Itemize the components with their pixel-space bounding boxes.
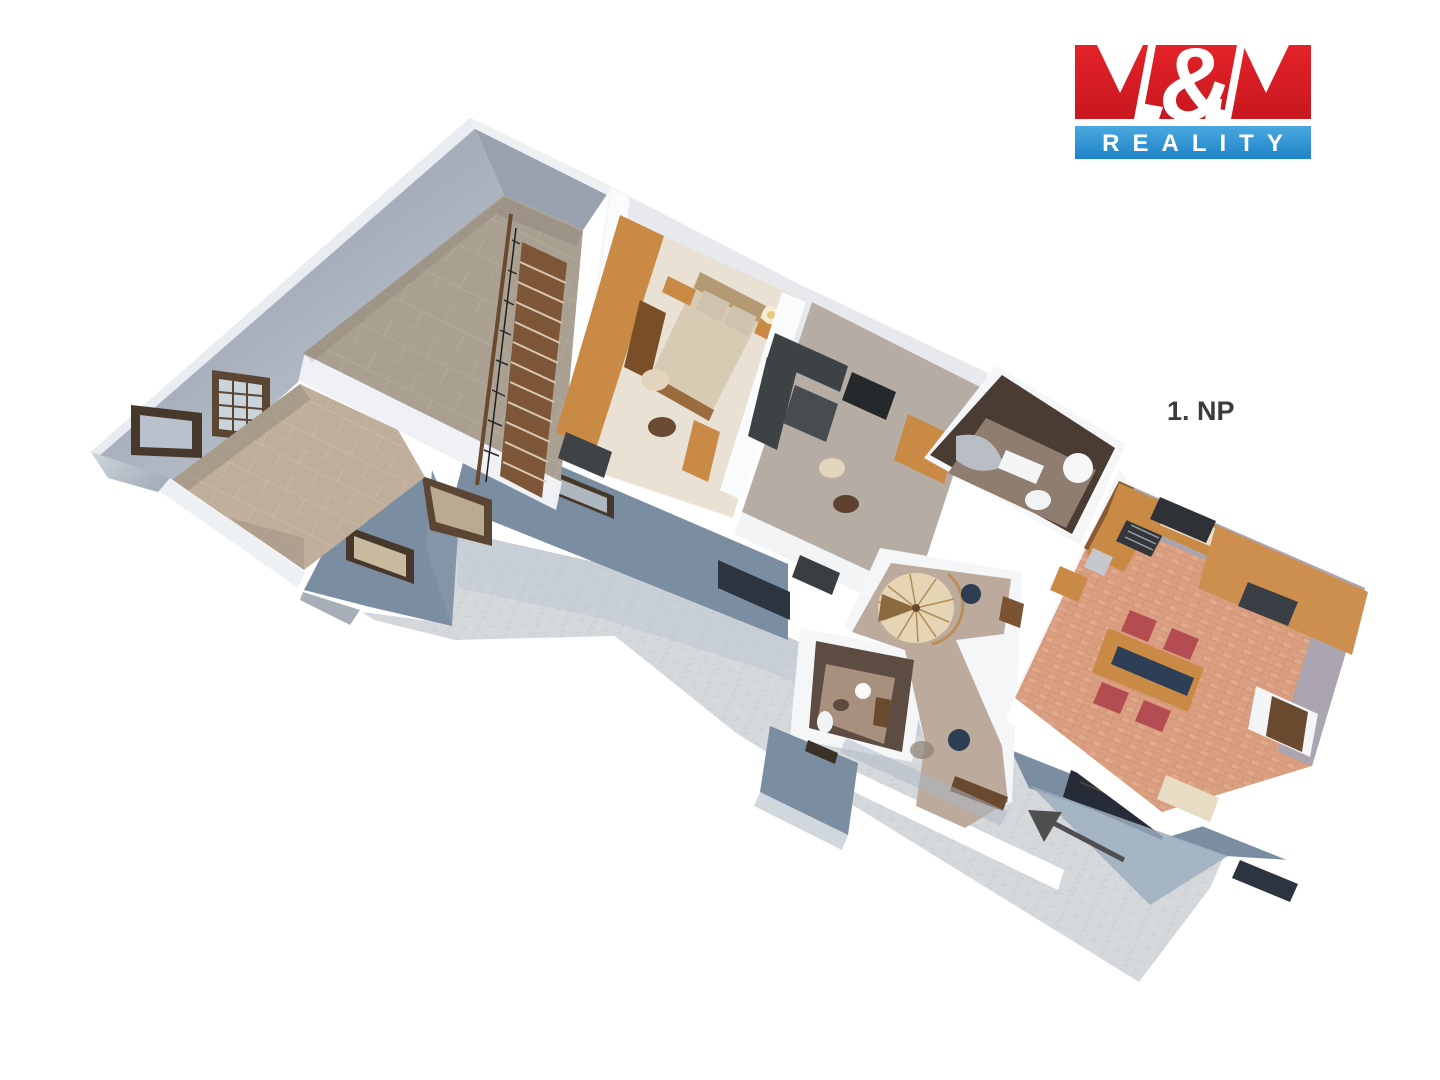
- svg-text:&: &: [1158, 27, 1233, 143]
- svg-text:1. NP: 1. NP: [1167, 396, 1235, 426]
- svg-text:REALITY: REALITY: [1102, 130, 1296, 157]
